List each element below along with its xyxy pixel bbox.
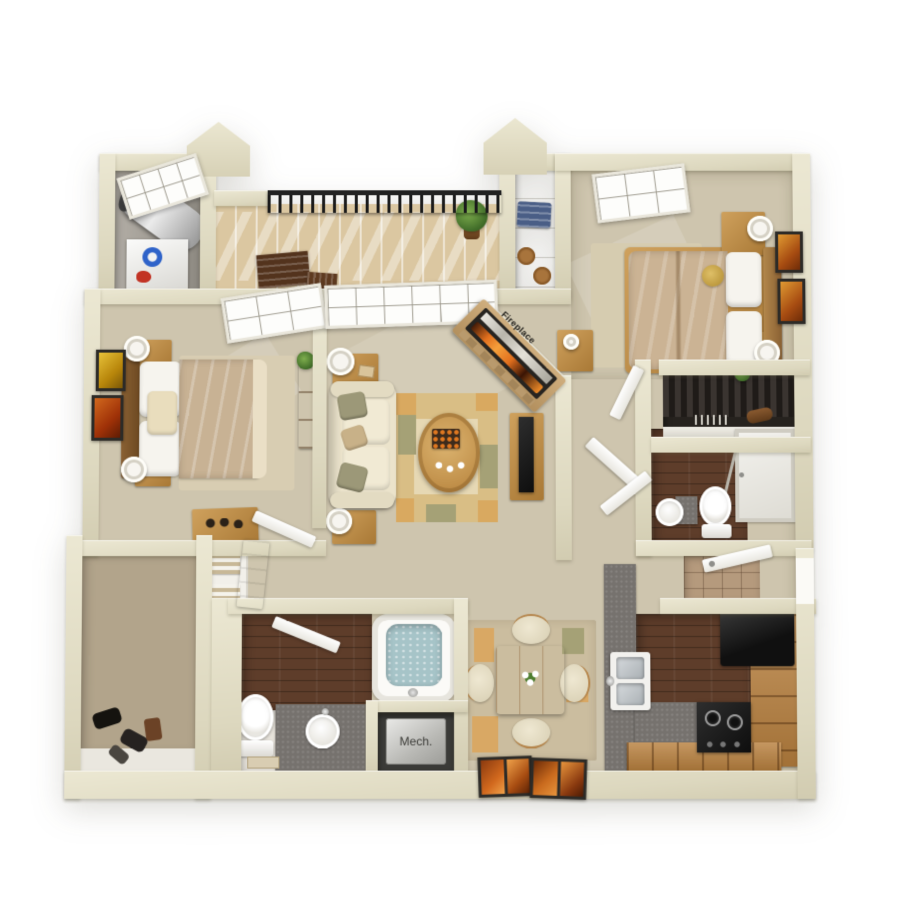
dining-rug-patch-1 bbox=[474, 628, 494, 662]
bath-mat bbox=[247, 756, 279, 768]
kitchen-sink bbox=[610, 652, 650, 710]
storage-basket-2 bbox=[533, 267, 551, 285]
end-table-top-book bbox=[358, 364, 375, 378]
floor-art-frame-1-print-a bbox=[481, 760, 505, 795]
bedroom1-accent-pillow bbox=[147, 391, 177, 435]
closet-hangers bbox=[695, 415, 731, 425]
dining-chair-right bbox=[560, 664, 588, 702]
sofa-arm-bottom bbox=[330, 492, 394, 508]
entry-door-opening bbox=[796, 558, 814, 604]
bedroom1-lamp-bottom bbox=[121, 457, 147, 483]
end-table-lamp-top bbox=[327, 348, 355, 376]
floorplan-canvas: Mech. bbox=[0, 0, 900, 900]
bedroom1-bed-blanket bbox=[179, 360, 263, 479]
mech-label: Mech. bbox=[400, 734, 433, 748]
wall-mech-top bbox=[366, 700, 468, 712]
bedroom2-lamp-top bbox=[747, 216, 773, 242]
wall-bathroom1-top bbox=[228, 598, 468, 614]
refrigerator bbox=[720, 610, 795, 666]
living-rug-patch-orange-1 bbox=[396, 393, 416, 415]
roof-gable-right bbox=[483, 118, 546, 175]
wall-kitchen-top bbox=[660, 598, 816, 614]
stove-burner-2 bbox=[727, 714, 743, 730]
dining-rug-patch-3 bbox=[472, 716, 498, 752]
dining-centerpiece bbox=[518, 668, 542, 688]
coffee-table-tray bbox=[432, 429, 460, 449]
walkin-stool bbox=[144, 717, 163, 741]
sofa-pillow-olive-1 bbox=[336, 391, 368, 421]
washer-unit bbox=[126, 239, 188, 292]
dining-chair-top bbox=[512, 616, 550, 644]
bedroom1-wall-art-yellow bbox=[96, 350, 126, 392]
bedroom1-wall-art-red-print bbox=[94, 398, 120, 438]
bedroom2-wall-art-1 bbox=[775, 231, 803, 272]
wall-bathroom2-bottom bbox=[636, 540, 812, 556]
bathroom2-toilet-bowl bbox=[699, 486, 731, 526]
bathroom2-toilet-tank bbox=[702, 524, 732, 538]
bedroom2-wall-art-1-print bbox=[778, 234, 800, 269]
kitchen-faucet bbox=[606, 676, 614, 686]
floor-art-frame-2 bbox=[530, 758, 588, 800]
floor-art-frame-2-print-a bbox=[533, 761, 558, 796]
washer-knob-blue bbox=[142, 247, 162, 267]
living-rug-patch-olive-1 bbox=[398, 413, 416, 455]
bathroom1-faucet bbox=[322, 708, 329, 715]
wall-closet2-top bbox=[659, 360, 810, 376]
wall-utility-left bbox=[98, 153, 115, 298]
bedroom1-wall-art-yellow-print bbox=[99, 353, 123, 389]
kitchen-sink-basin-2 bbox=[616, 683, 644, 705]
bathroom1-toilet-tank bbox=[239, 740, 273, 756]
wall-closet2-bottom bbox=[651, 437, 811, 453]
living-rug-patch-olive-2 bbox=[480, 445, 498, 489]
closet-hanging-clothes bbox=[663, 375, 803, 417]
kitchen-sink-basin-1 bbox=[616, 657, 644, 679]
wall-walkin-right bbox=[195, 535, 213, 799]
shower-handle bbox=[739, 472, 744, 477]
bathtub-water bbox=[386, 624, 442, 686]
bedroom2-accent-pillow-gold bbox=[702, 265, 724, 287]
apartment-3d-floorplan: Mech. bbox=[58, 118, 822, 805]
range-stove bbox=[697, 702, 752, 752]
bathroom2-sink bbox=[655, 498, 683, 526]
storage-basket-1 bbox=[517, 247, 535, 265]
bathroom1-toilet-bowl bbox=[237, 694, 273, 740]
floor-art-frame-1-print-b bbox=[506, 759, 530, 794]
wall-balcony-stub bbox=[214, 190, 270, 206]
bedroom1-lamp-top bbox=[124, 336, 150, 362]
dining-chair-bottom bbox=[512, 718, 550, 746]
wall-balcony-right bbox=[499, 153, 515, 298]
mech-unit: Mech. bbox=[386, 718, 446, 764]
tv-flatscreen bbox=[519, 417, 534, 492]
living-rug-patch-orange-3 bbox=[396, 498, 414, 522]
floor-art-frame-1 bbox=[477, 756, 533, 798]
wall-walkin-left bbox=[64, 535, 82, 799]
stove-burner-1 bbox=[705, 710, 721, 726]
living-rug-patch-olive-3 bbox=[426, 504, 456, 522]
wall-living-right bbox=[555, 375, 572, 560]
dining-chair-left bbox=[466, 664, 494, 702]
balcony-bench bbox=[256, 251, 310, 289]
wall-bottom-exterior bbox=[64, 771, 816, 799]
console-table-lamp bbox=[563, 334, 579, 350]
bedroom2-wall-art-2 bbox=[777, 279, 805, 324]
bedroom1-wall-art-red bbox=[91, 395, 123, 441]
wall-bathroom1-right bbox=[454, 598, 468, 776]
wall-bathroom1-left-fill bbox=[211, 598, 242, 776]
living-rug-patch-orange-4 bbox=[478, 500, 498, 522]
dining-rug-patch-2 bbox=[562, 628, 584, 654]
storage-linens-blue bbox=[517, 201, 552, 228]
bathroom1-vessel-sink bbox=[306, 714, 340, 748]
balcony-railing bbox=[268, 190, 502, 213]
floor-art-frame-2-print-b bbox=[559, 762, 584, 797]
stove-knobs bbox=[705, 740, 745, 748]
bedroom2-wall-art-2-print bbox=[780, 282, 802, 321]
bathtub-faucet bbox=[408, 688, 418, 697]
bedroom1-bed-foot-fold bbox=[253, 360, 267, 479]
coffee-table-cups bbox=[434, 461, 466, 473]
wall-right-upper bbox=[792, 153, 813, 550]
wall-hall-right-stub bbox=[635, 360, 652, 557]
bedroom1-desk-items bbox=[204, 518, 244, 528]
wall-mech-left bbox=[366, 700, 378, 775]
coffee-table bbox=[418, 413, 480, 492]
end-table-lamp-bottom bbox=[326, 508, 352, 534]
entry-door-handle bbox=[708, 560, 715, 567]
living-rug-patch-orange-2 bbox=[476, 393, 498, 411]
bedroom2-pillow-1 bbox=[726, 252, 762, 307]
washer-knob-red bbox=[136, 271, 151, 283]
wall-storage-right bbox=[555, 153, 571, 298]
walkin-closet-baseboard bbox=[80, 748, 195, 772]
